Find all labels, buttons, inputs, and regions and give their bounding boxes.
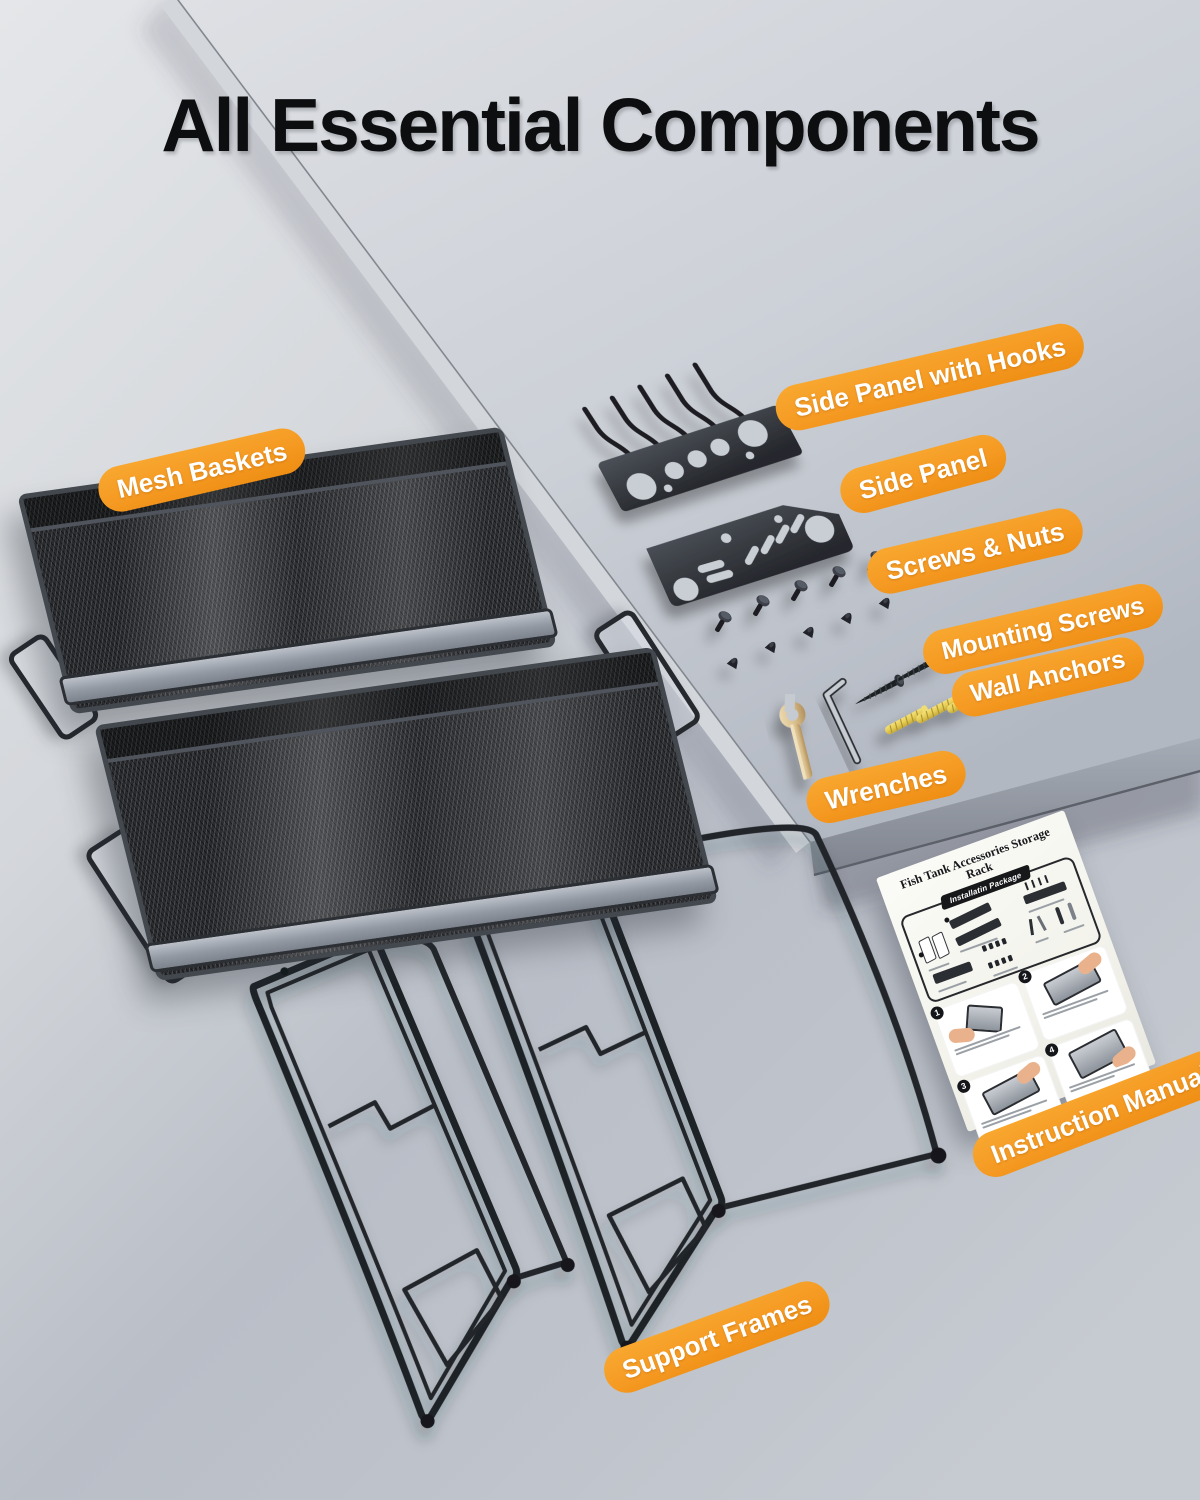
product-photo: Fish Tank Accessories Storage Rack Insta… — [0, 0, 1200, 1500]
manual-part-long-screws-icon — [1055, 900, 1085, 933]
hex-key — [825, 682, 876, 760]
side-panel-with-hooks-part — [567, 348, 804, 513]
manual-part-screw-set-icon — [977, 930, 1018, 978]
manual-part-wrench-icon — [1027, 915, 1049, 943]
open-end-wrench — [775, 690, 822, 782]
page-title: All Essential Components — [0, 82, 1200, 168]
side-panel-part — [645, 492, 857, 608]
nuts — [727, 595, 893, 669]
support-frame-left — [236, 908, 612, 1430]
